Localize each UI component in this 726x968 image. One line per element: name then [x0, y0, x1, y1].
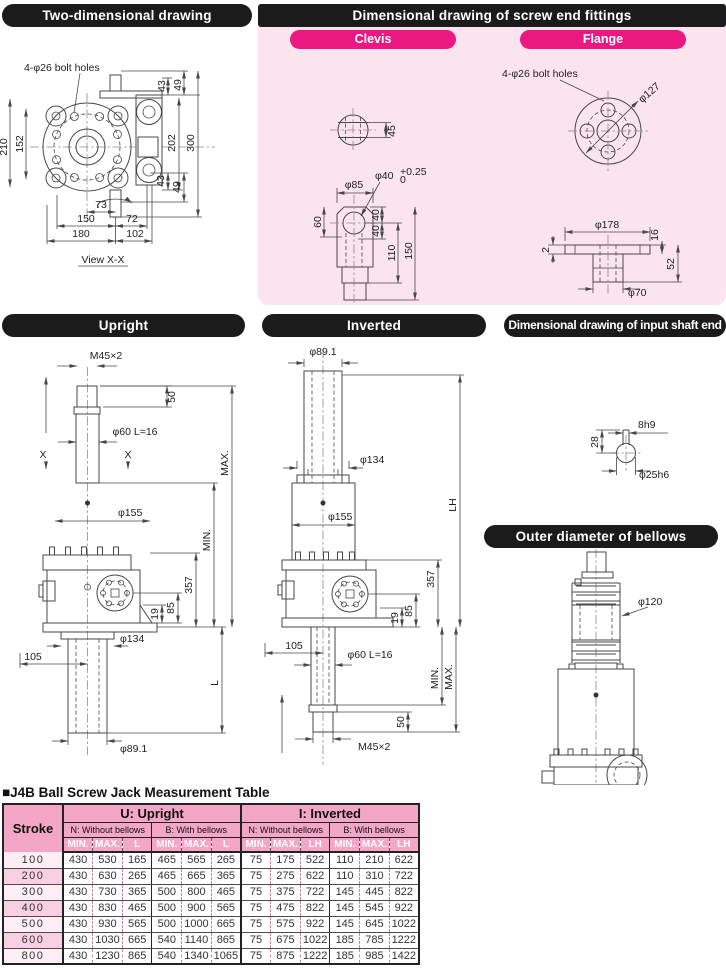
dim-50: 50 [166, 391, 178, 403]
measurement-value: 75 [241, 868, 271, 884]
dim-178: φ178 [595, 219, 619, 231]
upright-drawing: M45×2 50 φ60 L=16 X X φ155 MAX. MIN. 357… [0, 335, 250, 785]
dim-134: φ134 [120, 633, 144, 645]
input-shaft-structure [610, 430, 642, 471]
dim-60: 60 [312, 216, 324, 228]
measurement-value: 145 [330, 900, 360, 916]
dim-key: 8h9 [638, 419, 656, 431]
dim-L: L [209, 680, 221, 686]
table-row: 40043083046550090056575475822145545922 [3, 900, 419, 916]
flange-top-view: 4-φ26 bolt holes φ127 [502, 68, 663, 171]
measurement-value: 75 [241, 852, 271, 868]
measurement-value: 540 [152, 932, 182, 948]
stroke-value: 300 [3, 884, 63, 900]
measurement-value: 375 [271, 884, 301, 900]
section-header-upright: Upright [2, 314, 245, 337]
dim-210: 210 [0, 138, 10, 156]
inverted-drawing: φ89.1 LH φ134 φ155 357 19 85 105 φ60 L=1… [250, 335, 490, 785]
measurement-value: 565 [182, 852, 212, 868]
dim-150: 150 [403, 242, 415, 260]
column-header: LH [300, 837, 330, 852]
table-subcol-row: MIN.MAX.LMIN.MAX.LMIN.MAX.LHMIN.MAX.LH [3, 837, 419, 852]
measurement-value: 75 [241, 884, 271, 900]
measurement-value: 365 [122, 884, 152, 900]
measurement-value: 675 [271, 932, 301, 948]
measurement-table: Stroke U: Upright I: Inverted N: Without… [2, 803, 420, 965]
measurement-value: 985 [360, 948, 390, 964]
measurement-value: 1222 [300, 948, 330, 964]
measurement-value: 445 [360, 884, 390, 900]
measurement-value: 1230 [93, 948, 123, 964]
bellows-drawing: φ120 [490, 545, 726, 785]
measurement-value: 622 [300, 868, 330, 884]
flange-label: Flange [520, 30, 686, 49]
measurement-value: 522 [300, 852, 330, 868]
clevis-drawing: 45 φ85 φ40 +0.25 0 60 40 40 110 150 [258, 55, 490, 305]
measurement-value: 930 [93, 916, 123, 932]
dim-127: φ127 [636, 80, 662, 105]
subgroup-header: N: Without bellows [241, 822, 330, 837]
dim-85: 85 [165, 602, 177, 614]
bellows-dimensions: φ120 [622, 596, 662, 616]
measurement-value: 1000 [182, 916, 212, 932]
group-header-inverted: I: Inverted [241, 804, 419, 822]
measurement-value: 430 [63, 852, 93, 868]
subgroup-header: B: With bellows [330, 822, 419, 837]
measurement-value: 830 [93, 900, 123, 916]
dim-50: 50 [395, 716, 407, 728]
section-header-inverted: Inverted [262, 314, 486, 337]
dim-891: φ89.1 [120, 743, 147, 755]
measurement-value: 665 [122, 932, 152, 948]
dim-45: 45 [386, 125, 398, 137]
column-header: MIN. [330, 837, 360, 852]
stroke-column-header: Stroke [3, 804, 63, 852]
measurement-value: 922 [389, 900, 419, 916]
table-title: ■J4B Ball Screw Jack Measurement Table [2, 785, 270, 800]
dim-lh: LH [447, 498, 459, 511]
measurement-value: 500 [152, 916, 182, 932]
two-dim-dimensions: 4-φ26 bolt holes 210 152 43 49 202 300 4… [0, 62, 202, 266]
table-row: 6004301030665540114086575675102218578512… [3, 932, 419, 948]
measurement-table-body: 1004305301654655652657517552211021062220… [3, 852, 419, 964]
clevis-label: Clevis [290, 30, 456, 49]
measurement-value: 475 [271, 900, 301, 916]
inverted-dimensions: φ89.1 LH φ134 φ155 357 19 85 105 φ60 L=1… [265, 346, 464, 753]
measurement-value: 1022 [389, 916, 419, 932]
measurement-value: 430 [63, 932, 93, 948]
dim-120: φ120 [638, 596, 662, 608]
dim-60: φ60 L=16 [112, 426, 157, 438]
column-header: MIN. [241, 837, 271, 852]
measurement-value: 310 [360, 868, 390, 884]
dim-110: 110 [386, 244, 398, 261]
measurement-value: 500 [152, 900, 182, 916]
measurement-value: 465 [152, 852, 182, 868]
dim-40b: 40 [370, 225, 382, 237]
dim-bolt-holes: 4-φ26 bolt holes [502, 68, 578, 80]
dim-49-bottom: 49 [171, 181, 183, 193]
section-x-right: X [124, 449, 131, 461]
measurement-value: 465 [152, 868, 182, 884]
dim-102: 102 [126, 228, 144, 240]
dim-891: φ89.1 [309, 346, 336, 358]
measurement-value: 1022 [300, 932, 330, 948]
measurement-value: 75 [241, 948, 271, 964]
dim-m45: M45×2 [90, 350, 123, 362]
measurement-value: 800 [182, 884, 212, 900]
measurement-value: 730 [93, 884, 123, 900]
section-header-screw-end: Dimensional drawing of screw end fitting… [258, 4, 726, 27]
measurement-value: 565 [211, 900, 241, 916]
group-header-upright: U: Upright [63, 804, 241, 822]
measurement-value: 900 [182, 900, 212, 916]
measurement-value: 430 [63, 884, 93, 900]
measurement-value: 465 [211, 884, 241, 900]
measurement-value: 265 [211, 852, 241, 868]
bellows-structure [542, 549, 647, 785]
dim-28: 28 [589, 436, 601, 448]
column-header: L [122, 837, 152, 852]
view-xx-label: View X-X [82, 254, 125, 266]
dim-105: 105 [24, 651, 42, 663]
clevis-top-view: 45 [330, 108, 398, 152]
measurement-value: 865 [122, 948, 152, 964]
measurement-value: 145 [330, 884, 360, 900]
dim-shaft: φ25h6 [639, 469, 669, 481]
section-header-bellows: Outer diameter of bellows [484, 525, 718, 548]
measurement-value: 922 [300, 916, 330, 932]
dim-min: MIN. [201, 529, 213, 551]
dim-43-top: 43 [156, 80, 168, 92]
measurement-value: 645 [360, 916, 390, 932]
measurement-value: 210 [360, 852, 390, 868]
dim-70: φ70 [628, 287, 647, 299]
measurement-value: 530 [93, 852, 123, 868]
dim-19: 19 [389, 612, 401, 624]
input-shaft-dimensions: 8h9 28 φ25h6 [589, 419, 669, 481]
dim-60: φ60 L=16 [347, 649, 392, 661]
measurement-value: 265 [122, 868, 152, 884]
dim-85: 85 [403, 605, 415, 617]
catalog-page: { "colors": { "header_bar": "#1b1b1b", "… [0, 0, 726, 968]
flange-drawing: 4-φ26 bolt holes φ127 φ178 2 16 52 φ70 [490, 55, 726, 305]
column-header: MIN. [152, 837, 182, 852]
stroke-value: 800 [3, 948, 63, 964]
dim-202: 202 [166, 134, 178, 152]
measurement-value: 430 [63, 900, 93, 916]
table-row: 10043053016546556526575175522110210622 [3, 852, 419, 868]
measurement-value: 165 [122, 852, 152, 868]
dim-357: 357 [425, 570, 437, 588]
upright-dimensions: M45×2 50 φ60 L=16 X X φ155 MAX. MIN. 357… [20, 350, 236, 755]
measurement-value: 185 [330, 948, 360, 964]
dim-357: 357 [183, 576, 195, 594]
measurement-value: 110 [330, 868, 360, 884]
dim-min: MIN. [429, 667, 441, 689]
measurement-value: 430 [63, 868, 93, 884]
measurement-value: 875 [271, 948, 301, 964]
dim-85: φ85 [345, 179, 364, 191]
measurement-value: 565 [122, 916, 152, 932]
dim-155: φ155 [328, 511, 352, 523]
measurement-value: 1065 [211, 948, 241, 964]
dim-40-hole: φ40 [375, 170, 394, 182]
measurement-value: 785 [360, 932, 390, 948]
dim-m45: M45×2 [358, 741, 391, 753]
subgroup-header: B: With bellows [152, 822, 241, 837]
stroke-value: 600 [3, 932, 63, 948]
column-header: LH [389, 837, 419, 852]
stroke-value: 200 [3, 868, 63, 884]
table-row: 8004301230865540134010657587512221859851… [3, 948, 419, 964]
stroke-value: 100 [3, 852, 63, 868]
measurement-value: 430 [63, 948, 93, 964]
measurement-value: 145 [330, 916, 360, 932]
measurement-value: 75 [241, 916, 271, 932]
measurement-value: 1340 [182, 948, 212, 964]
dim-max: MAX. [219, 450, 231, 476]
flange-section-view: φ178 2 16 52 φ70 [540, 219, 682, 299]
measurement-value: 1140 [182, 932, 212, 948]
measurement-value: 822 [300, 900, 330, 916]
measurement-value: 722 [389, 868, 419, 884]
clevis-front-view: φ85 φ40 +0.25 0 60 40 40 110 150 [312, 166, 427, 303]
measurement-value: 75 [241, 932, 271, 948]
dim-2: 2 [540, 247, 552, 253]
dim-max: MAX. [443, 664, 455, 690]
measurement-value: 110 [330, 852, 360, 868]
measurement-value: 722 [300, 884, 330, 900]
measurement-value: 822 [389, 884, 419, 900]
dim-52: 52 [665, 258, 677, 270]
measurement-value: 665 [182, 868, 212, 884]
dim-73: 73 [95, 199, 107, 211]
dim-150: 150 [77, 213, 95, 225]
dim-134: φ134 [360, 454, 384, 466]
section-x-left: X [39, 449, 46, 461]
measurement-value: 365 [211, 868, 241, 884]
measurement-value: 1030 [93, 932, 123, 948]
two-dimensional-drawing: 4-φ26 bolt holes 210 152 43 49 202 300 4… [0, 55, 256, 305]
measurement-value: 665 [211, 916, 241, 932]
stroke-value: 500 [3, 916, 63, 932]
dim-43-bottom: 43 [155, 175, 167, 187]
column-header: MAX. [93, 837, 123, 852]
dim-72: 72 [126, 213, 138, 225]
section-header-input-shaft: Dimensional drawing of input shaft end [504, 314, 726, 337]
measurement-value: 545 [360, 900, 390, 916]
measurement-value: 465 [122, 900, 152, 916]
inverted-structure [278, 349, 393, 765]
dim-300: 300 [185, 134, 197, 152]
measurement-value: 575 [271, 916, 301, 932]
dim-bolt-holes: 4-φ26 bolt holes [24, 62, 100, 74]
column-header: L [211, 837, 241, 852]
dim-105: 105 [285, 640, 303, 652]
measurement-value: 275 [271, 868, 301, 884]
stroke-value: 400 [3, 900, 63, 916]
dim-180: 180 [72, 228, 90, 240]
measurement-value: 500 [152, 884, 182, 900]
subgroup-header: N: Without bellows [63, 822, 152, 837]
input-shaft-drawing: 8h9 28 φ25h6 [490, 335, 726, 525]
table-row: 5004309305655001000665755759221456451022 [3, 916, 419, 932]
measurement-value: 185 [330, 932, 360, 948]
table-row: 20043063026546566536575275622110310722 [3, 868, 419, 884]
table-row: 30043073036550080046575375722145445822 [3, 884, 419, 900]
dim-152: 152 [14, 135, 26, 153]
dim-19: 19 [149, 608, 161, 620]
dim-40a: 40 [370, 209, 382, 221]
measurement-value: 175 [271, 852, 301, 868]
column-header: MIN. [63, 837, 93, 852]
section-header-two-dimensional: Two-dimensional drawing [2, 4, 252, 27]
measurement-value: 630 [93, 868, 123, 884]
measurement-value: 75 [241, 900, 271, 916]
column-header: MAX. [271, 837, 301, 852]
measurement-value: 430 [63, 916, 93, 932]
dim-40-tol-bottom: 0 [400, 174, 406, 186]
measurement-value: 540 [152, 948, 182, 964]
column-header: MAX. [182, 837, 212, 852]
measurement-value: 1222 [389, 932, 419, 948]
measurement-value: 1422 [389, 948, 419, 964]
column-header: MAX. [360, 837, 390, 852]
measurement-value: 865 [211, 932, 241, 948]
dim-16: 16 [649, 229, 661, 241]
dim-49-top: 49 [172, 79, 184, 91]
measurement-value: 622 [389, 852, 419, 868]
dim-155: φ155 [118, 507, 142, 519]
